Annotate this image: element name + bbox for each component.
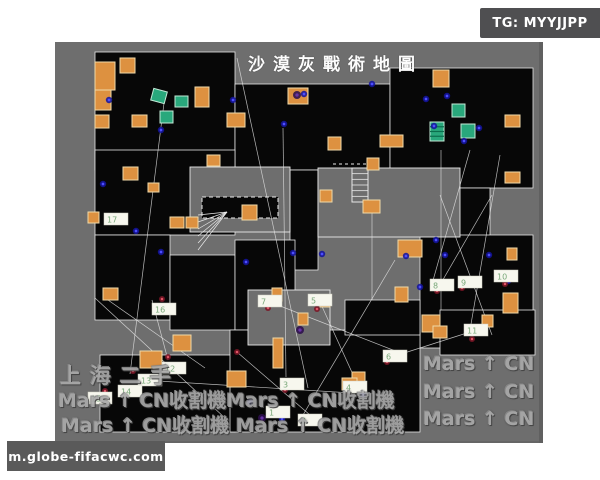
crate-orange bbox=[320, 190, 332, 202]
marker-label-number: 8 bbox=[433, 282, 438, 291]
spawn-dot-core bbox=[478, 127, 481, 130]
crate-orange bbox=[227, 113, 245, 127]
spawn-dot-core bbox=[161, 298, 164, 301]
spawn-dot-core bbox=[504, 283, 507, 286]
marker-label-number: 6 bbox=[386, 353, 391, 362]
marker-label-number: 15 bbox=[91, 395, 101, 404]
crate-orange bbox=[298, 313, 308, 325]
spawn-dot-core bbox=[283, 123, 286, 126]
crate-orange bbox=[140, 351, 162, 368]
telegram-badge-text: TG: MYYJJPP bbox=[492, 16, 587, 31]
crate-orange bbox=[103, 288, 118, 300]
map-title: 沙漠灰戰術地圖 bbox=[248, 50, 423, 75]
crate-orange bbox=[363, 200, 380, 213]
marker-label-number: 10 bbox=[497, 273, 507, 282]
page: TG: MYYJJPP 1234567891011121314151617 沙漠… bbox=[0, 0, 600, 480]
spawn-dot-core bbox=[419, 286, 422, 289]
crate-orange bbox=[95, 115, 109, 128]
spawn-dot-core bbox=[132, 370, 135, 373]
telegram-badge: TG: MYYJJPP bbox=[480, 8, 600, 38]
spawn-dot-core bbox=[371, 83, 374, 86]
crate-orange bbox=[195, 87, 209, 107]
spawn-dot-core bbox=[245, 261, 248, 264]
spawn-dot-core bbox=[108, 99, 111, 102]
spawn-dot-core bbox=[260, 416, 263, 419]
site-watermark-text: m.globe-fifacwc.com bbox=[8, 449, 163, 464]
marker-label-number: 17 bbox=[107, 216, 117, 225]
tactical-map: 1234567891011121314151617 沙漠灰戰術地圖 上海二手 M… bbox=[55, 42, 543, 443]
marker-label-number: 1 bbox=[269, 409, 274, 418]
crate-orange bbox=[505, 115, 520, 127]
crate-orange bbox=[507, 248, 517, 260]
marker-label-number: 3 bbox=[283, 381, 288, 390]
spawn-dot-core bbox=[488, 254, 491, 257]
crate-orange bbox=[148, 183, 159, 192]
marker-label-number: 14 bbox=[121, 388, 131, 397]
crate-orange bbox=[398, 240, 422, 257]
spawn-dot-core bbox=[298, 328, 301, 331]
marker-label-number: 4 bbox=[346, 384, 351, 393]
spawn-dot-core bbox=[463, 140, 466, 143]
crate-orange bbox=[120, 58, 135, 73]
crate-green bbox=[160, 111, 173, 123]
crate-orange bbox=[433, 326, 447, 338]
spawn-dot-core bbox=[295, 93, 298, 96]
spawn-dot-core bbox=[405, 255, 408, 258]
crate-orange bbox=[170, 217, 184, 228]
crate-orange bbox=[395, 287, 408, 302]
map-room bbox=[345, 300, 420, 335]
marker-label-number: 13 bbox=[141, 377, 151, 386]
spawn-dot-core bbox=[160, 129, 163, 132]
spawn-dot-core bbox=[321, 253, 324, 256]
spawn-dot-core bbox=[135, 230, 138, 233]
spawn-dot-core bbox=[160, 251, 163, 254]
crate-orange bbox=[503, 293, 518, 313]
marker-label-number: 12 bbox=[165, 365, 175, 374]
spawn-dot-core bbox=[249, 401, 252, 404]
crate-orange bbox=[186, 217, 198, 228]
spawn-dot-core bbox=[232, 99, 235, 102]
crate-orange bbox=[88, 212, 99, 223]
marker-label-number: 16 bbox=[155, 306, 165, 315]
crate-orange bbox=[132, 115, 147, 127]
crate-orange bbox=[123, 167, 138, 180]
spawn-dot-core bbox=[167, 356, 170, 359]
marker-label-number: 7 bbox=[261, 298, 266, 307]
spawn-dot-core bbox=[292, 252, 295, 255]
map-canvas: 1234567891011121314151617 bbox=[55, 42, 543, 443]
spawn-dot-core bbox=[471, 338, 474, 341]
spawn-dot-core bbox=[236, 351, 239, 354]
crate-orange bbox=[433, 70, 449, 87]
site-watermark-badge: m.globe-fifacwc.com bbox=[7, 441, 165, 471]
crate-orange bbox=[367, 158, 379, 170]
crate-green bbox=[175, 96, 188, 107]
crate-orange bbox=[505, 172, 520, 183]
spawn-dot-core bbox=[425, 98, 428, 101]
crate-orange bbox=[227, 371, 246, 387]
map-room bbox=[170, 255, 235, 330]
crate-orange bbox=[173, 335, 191, 351]
spawn-dot-core bbox=[446, 95, 449, 98]
crate-orange bbox=[95, 62, 115, 90]
spawn-dot-core bbox=[303, 93, 306, 96]
spawn-dot-core bbox=[435, 239, 438, 242]
marker-label-number: 9 bbox=[461, 279, 466, 288]
crate-orange bbox=[207, 155, 220, 166]
crate-green bbox=[452, 104, 465, 117]
spawn-dot-core bbox=[433, 125, 436, 128]
marker-label-number: 11 bbox=[467, 327, 477, 336]
spawn-dot-core bbox=[102, 183, 105, 186]
spawn-dot-core bbox=[316, 308, 319, 311]
crate-green bbox=[461, 124, 475, 138]
marker-label-number: 5 bbox=[311, 297, 316, 306]
spawn-dot-core bbox=[444, 254, 447, 257]
map-platform bbox=[318, 168, 460, 237]
crate-orange bbox=[380, 135, 403, 147]
crate-orange bbox=[328, 137, 341, 150]
crate-orange bbox=[273, 338, 283, 368]
map-dashed-area bbox=[202, 197, 278, 218]
crate-orange bbox=[242, 205, 257, 220]
marker-label-number: 2 bbox=[301, 417, 306, 426]
